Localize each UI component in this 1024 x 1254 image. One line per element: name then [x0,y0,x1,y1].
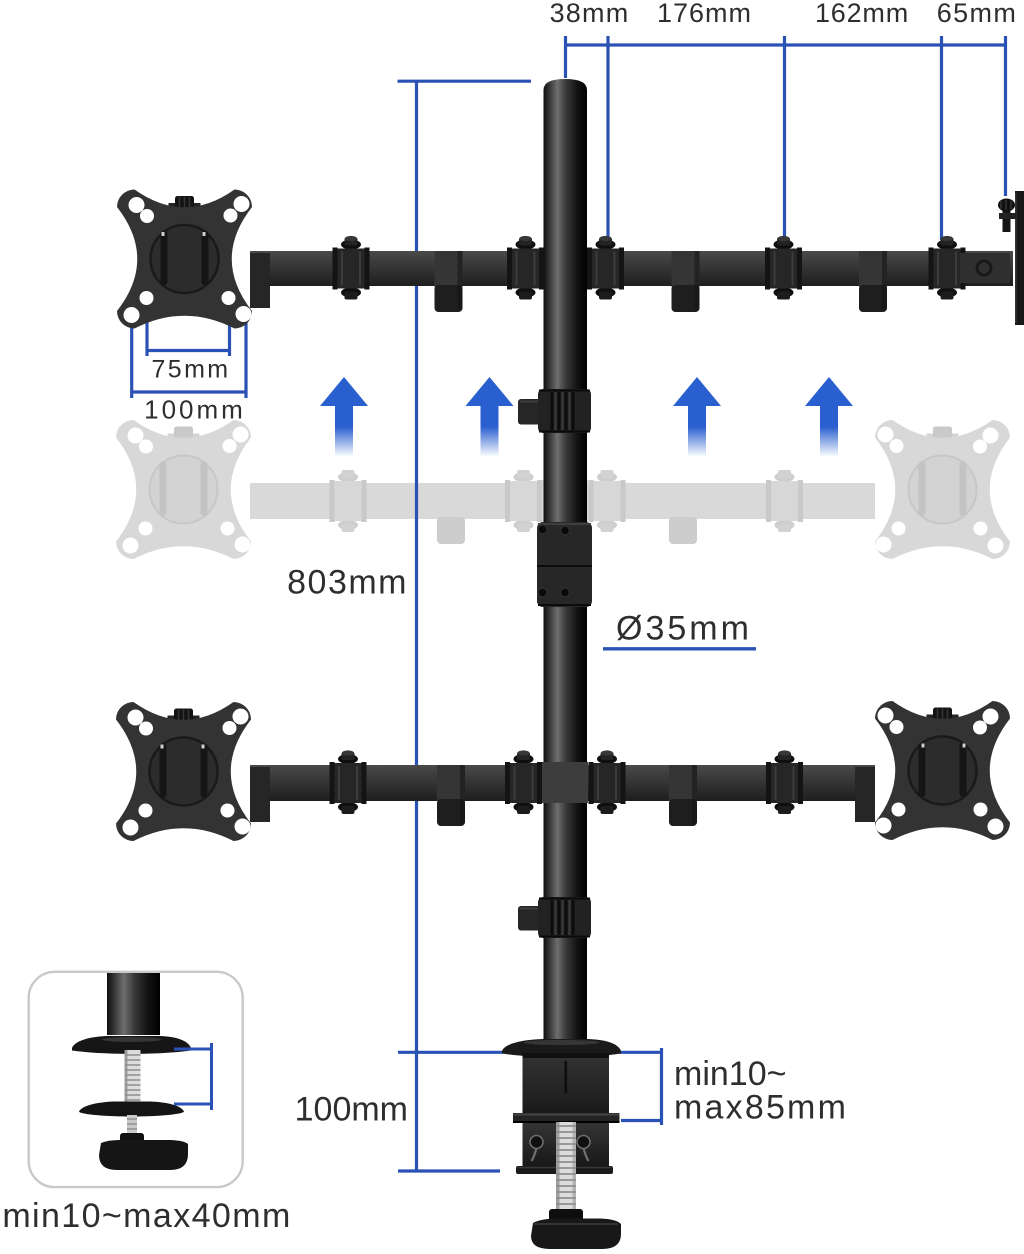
svg-text:min10~max40mm: min10~max40mm [2,1197,291,1235]
svg-text:100mm: 100mm [144,395,246,425]
svg-text:100mm: 100mm [295,1091,408,1129]
svg-text:65mm: 65mm [937,0,1018,28]
svg-text:Ø35mm: Ø35mm [616,610,752,648]
svg-text:176mm: 176mm [657,0,752,28]
svg-text:803mm: 803mm [287,564,408,602]
svg-text:38mm: 38mm [550,0,630,28]
svg-text:min10~: min10~ [674,1055,786,1093]
svg-text:max85mm: max85mm [674,1089,848,1127]
svg-text:162mm: 162mm [815,0,909,28]
svg-text:75mm: 75mm [151,356,230,384]
